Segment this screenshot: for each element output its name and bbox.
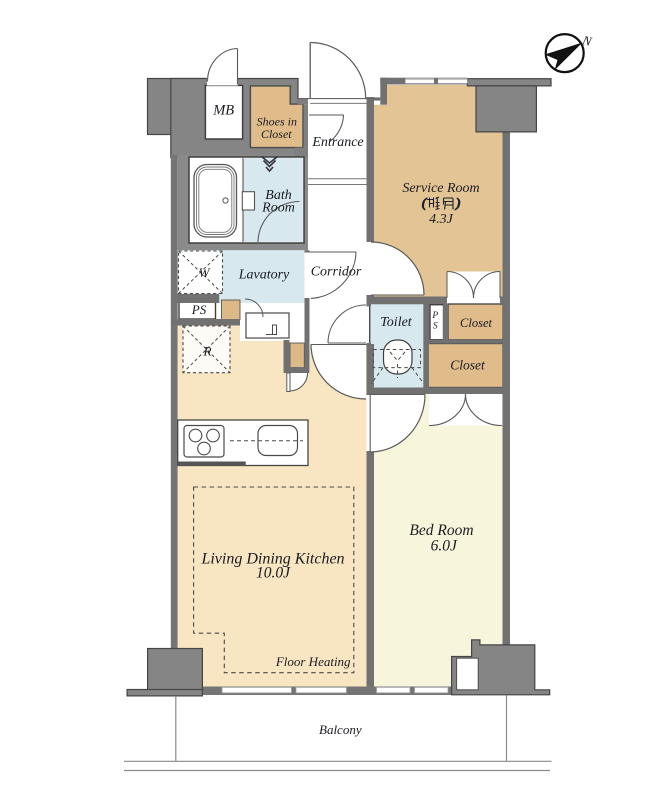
svg-text:Room: Room	[261, 201, 295, 216]
svg-text:Service Room: Service Room	[402, 181, 479, 196]
svg-text:Lavatory: Lavatory	[238, 268, 290, 283]
svg-text:Balcony: Balcony	[319, 722, 362, 737]
svg-text:Closet: Closet	[450, 358, 486, 373]
svg-text:S: S	[433, 322, 438, 332]
svg-text:Bed Room: Bed Room	[409, 522, 473, 539]
svg-text:W: W	[199, 265, 211, 280]
svg-text:Floor Heating: Floor Heating	[275, 654, 351, 669]
svg-text:Corridor: Corridor	[311, 265, 362, 280]
svg-text:Closet: Closet	[460, 316, 492, 330]
svg-text:Toilet: Toilet	[380, 315, 412, 330]
svg-text:R: R	[203, 344, 212, 359]
svg-text:Closet: Closet	[261, 127, 292, 141]
svg-text:4.3J: 4.3J	[429, 212, 454, 227]
svg-text:PS: PS	[191, 302, 207, 317]
svg-text:Entrance: Entrance	[311, 135, 363, 150]
svg-text:P: P	[431, 311, 438, 321]
svg-text:): )	[455, 195, 460, 210]
svg-text:MB: MB	[212, 103, 234, 119]
svg-text:(: (	[422, 195, 427, 210]
svg-text:6.0J: 6.0J	[431, 538, 458, 555]
svg-text:10.0J: 10.0J	[256, 565, 291, 582]
